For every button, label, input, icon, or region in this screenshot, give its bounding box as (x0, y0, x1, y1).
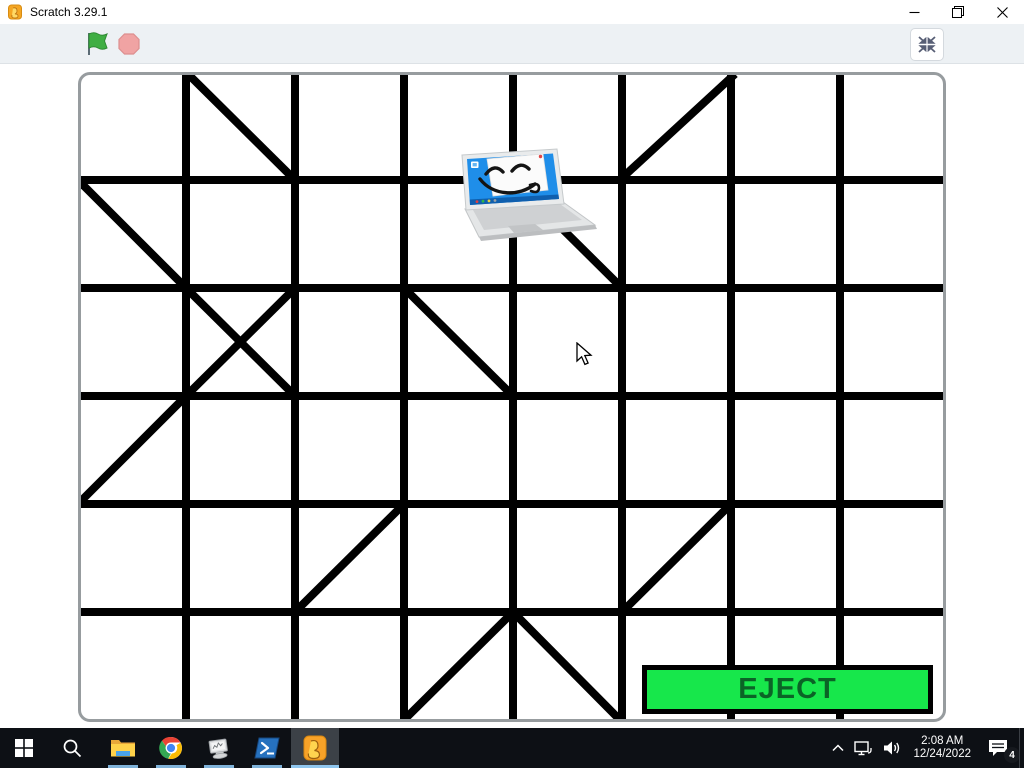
stage: EJECT (78, 72, 946, 722)
scratch-control-bar (0, 24, 1024, 64)
hidden-icons-button[interactable] (827, 728, 849, 768)
action-center-button[interactable]: 4 (978, 728, 1018, 768)
taskbar-item-chrome[interactable] (147, 728, 195, 768)
taskbar-item-file-explorer[interactable] (99, 728, 147, 768)
file-explorer-icon (110, 737, 136, 759)
title-bar: Scratch 3.29.1 (0, 0, 1024, 24)
scratch-taskbar-icon (303, 735, 327, 761)
close-icon (997, 7, 1008, 18)
green-flag-button[interactable] (86, 32, 108, 56)
start-button[interactable] (0, 728, 48, 768)
taskbar-item-powershell[interactable] (243, 728, 291, 768)
minimize-icon (909, 7, 920, 18)
mouse-cursor (576, 342, 593, 366)
taskbar-item-scratch[interactable] (291, 728, 339, 768)
network-display-icon (854, 740, 873, 757)
powershell-icon (254, 737, 280, 759)
restore-button[interactable] (936, 0, 980, 24)
taskbar-item-utility-app[interactable] (195, 728, 243, 768)
window-controls (892, 0, 1024, 24)
clock-time: 2:08 AM (913, 735, 971, 748)
utility-app-icon (207, 736, 231, 760)
taskbar-clock[interactable]: 2:08 AM 12/24/2022 (906, 735, 978, 761)
notification-badge: 4 (1004, 747, 1020, 763)
stop-button[interactable] (118, 33, 140, 55)
chrome-icon (159, 736, 183, 760)
search-icon (62, 738, 82, 758)
speaker-icon (883, 740, 901, 756)
show-desktop-button[interactable] (1019, 728, 1024, 768)
scratch-app-icon (8, 4, 22, 20)
volume-button[interactable] (878, 728, 906, 768)
exit-fullscreen-button[interactable] (910, 28, 944, 61)
close-button[interactable] (980, 0, 1024, 24)
windows-start-icon (15, 739, 33, 757)
eject-label: EJECT (738, 673, 836, 706)
restore-icon (952, 6, 964, 18)
window-title: Scratch 3.29.1 (30, 5, 107, 19)
taskbar: 2:08 AM 12/24/2022 4 (0, 728, 1024, 768)
system-tray: 2:08 AM 12/24/2022 4 (827, 728, 1018, 768)
chevron-up-icon (832, 744, 844, 752)
exit-fullscreen-icon (918, 36, 936, 53)
eject-button[interactable]: EJECT (642, 665, 933, 714)
clock-date: 12/24/2022 (913, 748, 971, 761)
laptop-sprite[interactable] (453, 147, 605, 247)
network-button[interactable] (849, 728, 878, 768)
search-button[interactable] (48, 728, 96, 768)
minimize-button[interactable] (892, 0, 936, 24)
